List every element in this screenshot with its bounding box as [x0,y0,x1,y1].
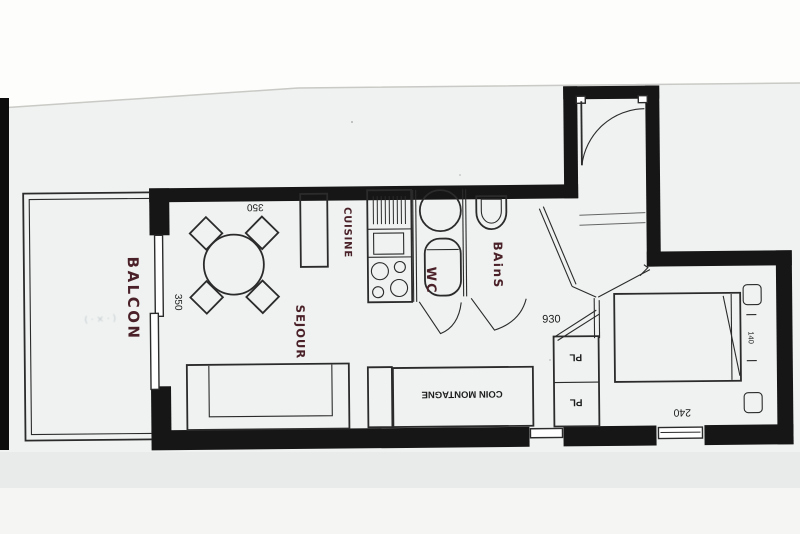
wall-bottom-right [704,424,793,445]
label-coin-montagne: COIN MONTAGNE [421,388,502,400]
scan-lower-area [0,488,800,534]
dim-bedroom: 240 [673,406,691,418]
wall-window-stub-top [149,188,169,235]
wall-bottom-mid [563,426,656,447]
coin-window [530,428,562,437]
wall-bedroom-top [647,250,792,266]
entry-door-leaf [581,101,582,165]
room-label-bains: BAinS [491,241,505,288]
label-placard-top: PL [569,351,582,362]
door-jamb [638,96,647,103]
sliding-door-panel-bottom [150,313,159,389]
room-label-balcon: BALCON [124,257,143,341]
dim-bed: 140 [747,331,756,344]
dim-sejour-window: 350 [172,294,183,311]
faint-pencil-note: ( · × · ) [84,314,116,326]
wall-right [776,250,794,444]
scan-edge-strip [0,98,9,450]
dim-sejour-top: 350 [246,201,263,212]
scan-speck [459,174,461,176]
sliding-door-panel-top [155,235,164,316]
room-label-sejour: SEJOUR [293,305,308,360]
label-placard-bottom: PL [570,396,583,407]
room-label-wc: WC [423,267,438,295]
scanned-floorplan-page: BALCON SEJOUR CUISINE WC BAinS COIN MONT… [0,0,800,534]
paper-sheet [0,83,800,452]
floorplan-drawing: BALCON SEJOUR CUISINE WC BAinS COIN MONT… [0,0,800,534]
wall-hall-right [645,86,661,267]
scan-speck [549,359,551,361]
room-label-cuisine: CUISINE [341,207,352,258]
scan-shadow-band [0,452,800,488]
dim-hall: 930 [542,313,560,325]
scan-paper [0,0,800,534]
wall-window-stub-bottom [151,386,171,432]
scan-speck [351,121,353,123]
